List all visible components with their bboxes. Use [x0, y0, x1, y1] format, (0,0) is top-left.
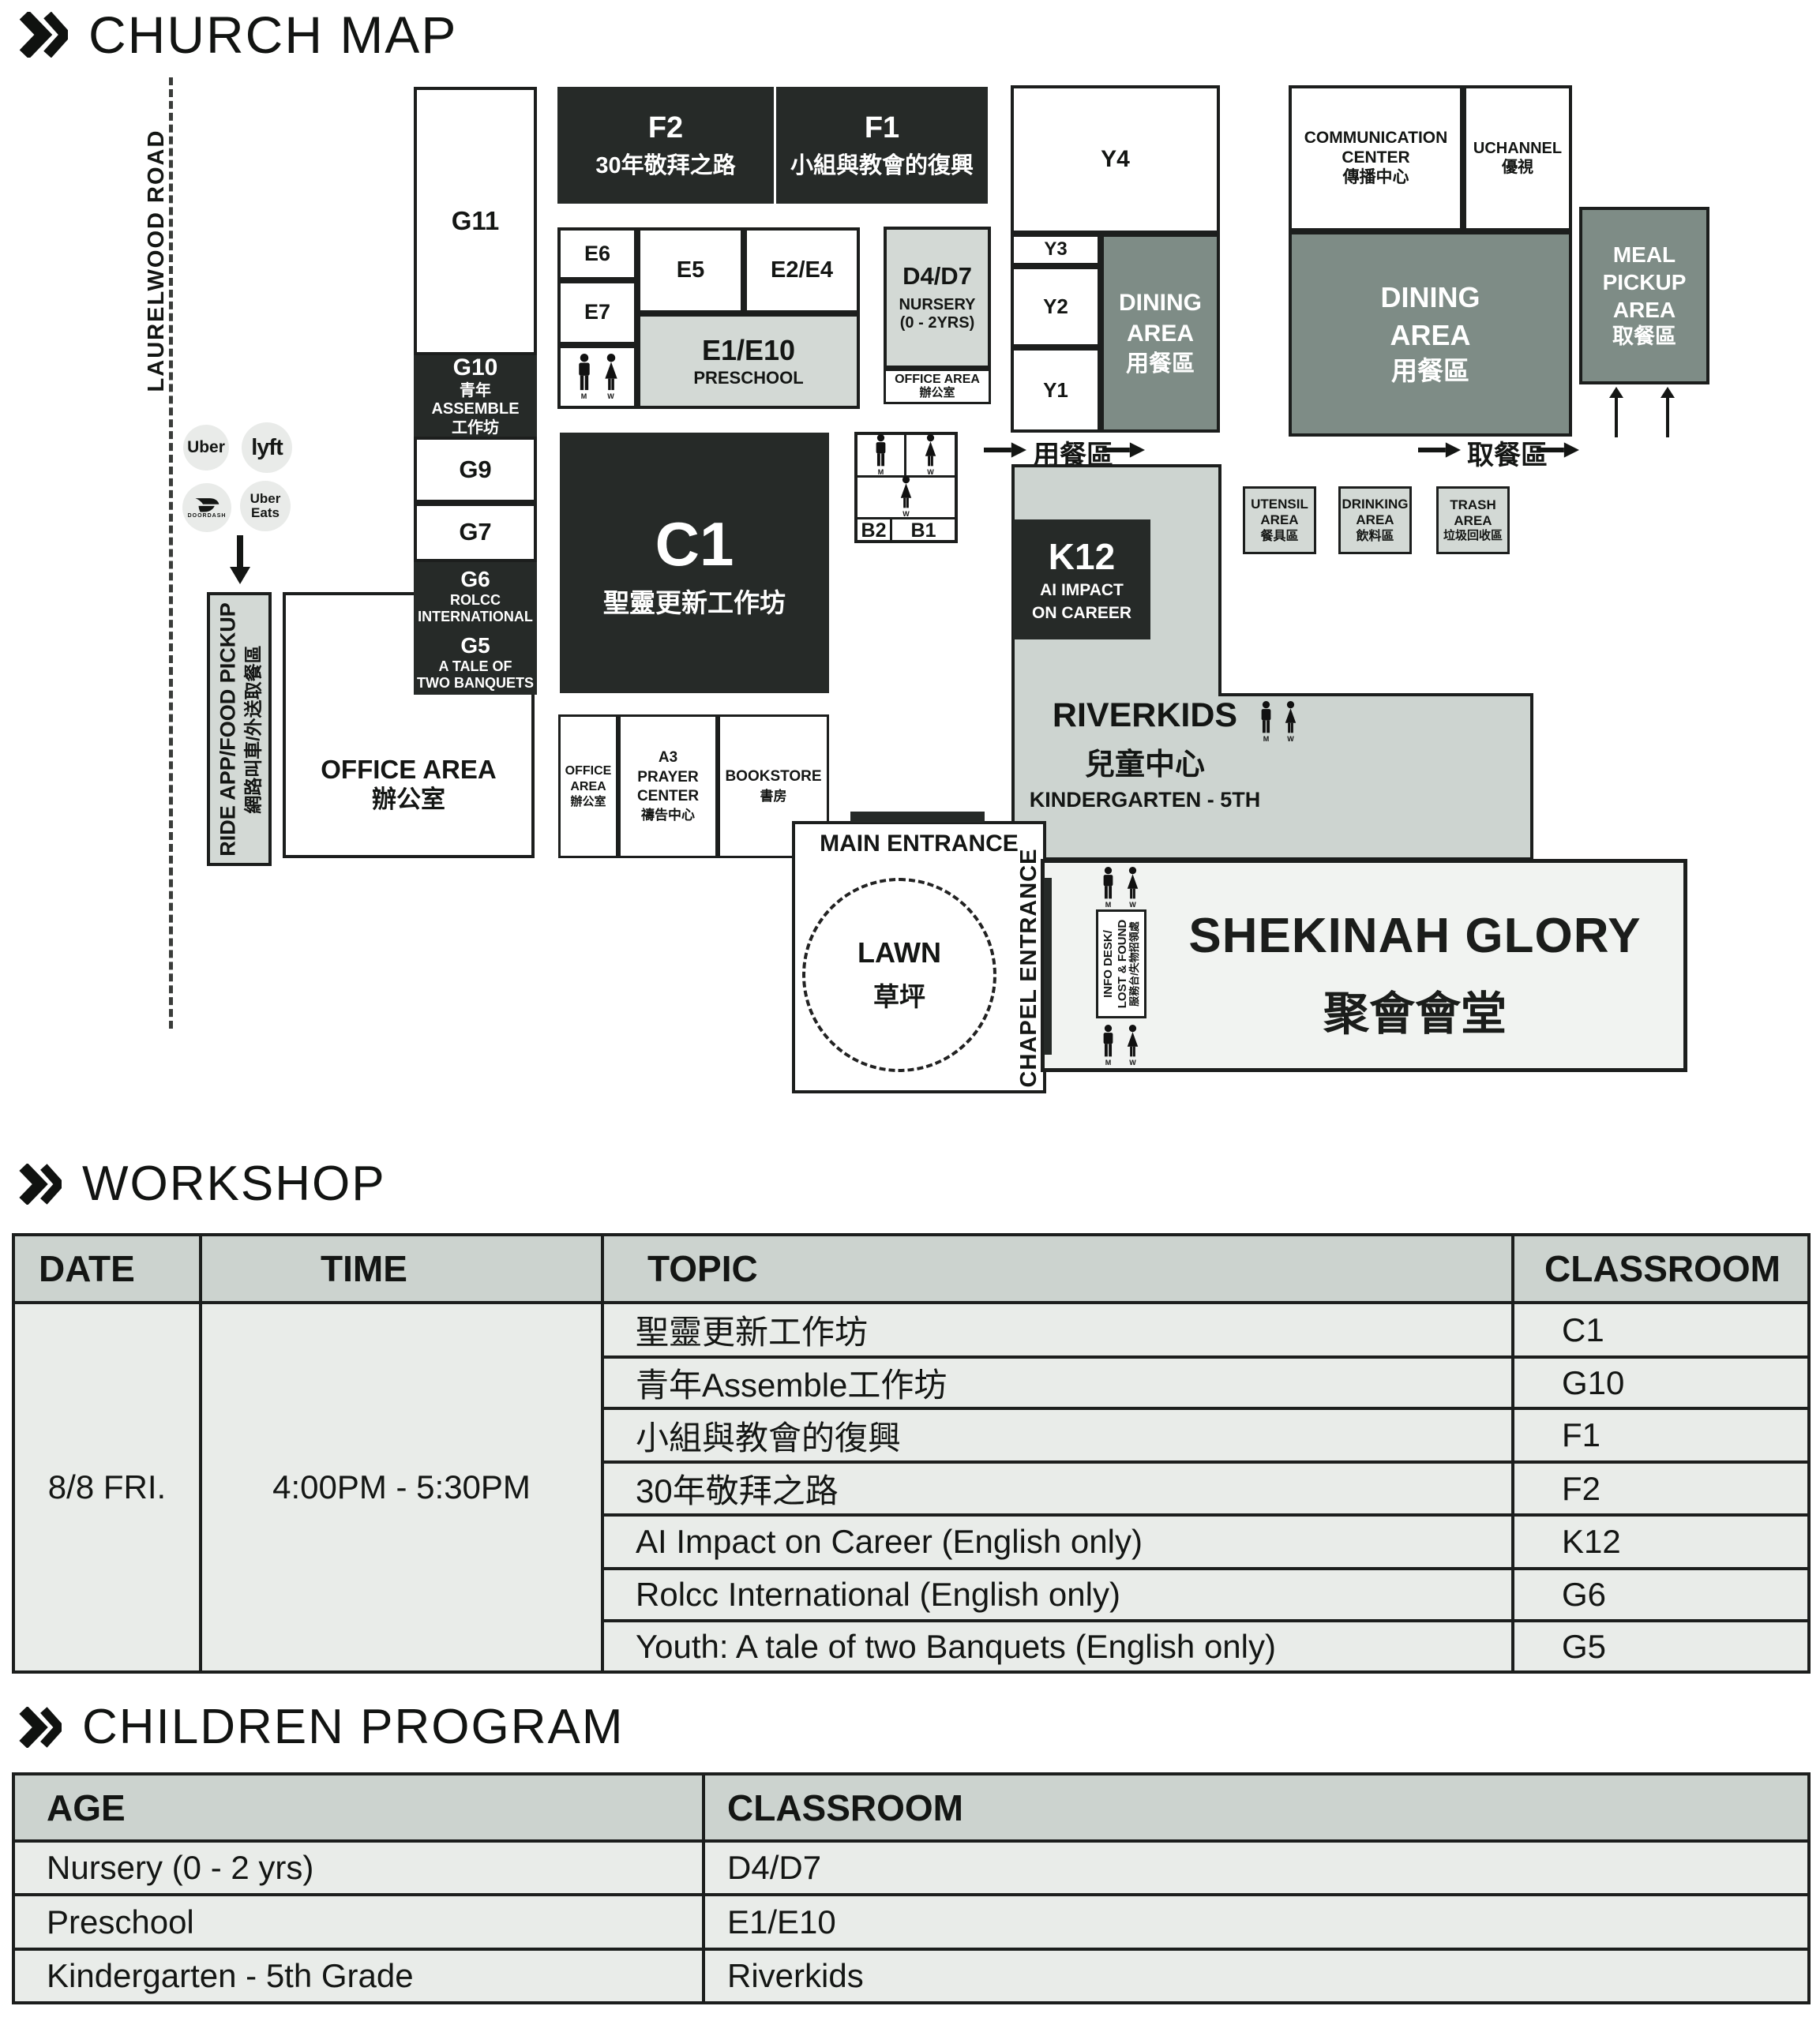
- office-d-label: OFFICE AREA: [895, 373, 980, 387]
- man-icon: M: [576, 354, 592, 401]
- dining2-l2: AREA: [1390, 319, 1470, 352]
- dining2-l1: DINING: [1381, 281, 1480, 314]
- topic-cell: Rolcc International (English only): [604, 1570, 1514, 1619]
- meal-l2: PICKUP: [1603, 269, 1687, 295]
- up-arrow-icon: [1609, 387, 1623, 437]
- office-area-d: OFFICE AREA 辦公室: [884, 369, 991, 404]
- room-g5-l1: A TALE OF: [439, 658, 512, 675]
- office-d-label-zh: 辦公室: [919, 387, 955, 400]
- right-arrow-icon: [1102, 442, 1145, 458]
- room-e5: E5: [637, 227, 744, 313]
- man-glyph-icon: [1259, 701, 1273, 734]
- restroom-b-women-cell: W: [906, 435, 955, 475]
- room-g10-zh1: 青年ASSEMBLE: [417, 382, 534, 419]
- double-chevron-icon: [17, 1164, 62, 1205]
- restroom-shekinah-top: M W: [1096, 867, 1145, 909]
- room-c1-id: C1: [655, 508, 734, 580]
- room-k12-id: K12: [1049, 535, 1115, 578]
- woman-icon: W: [1284, 701, 1297, 743]
- ubereats-label-1: Uber: [250, 492, 281, 506]
- meal-pickup-area: MEAL PICKUP AREA 取餐區: [1579, 207, 1709, 384]
- man-glyph-icon: [874, 434, 887, 467]
- up-arrow-icon: [1661, 387, 1675, 437]
- office-small-zh: 辦公室: [570, 795, 606, 810]
- man-icon: M: [1101, 867, 1115, 909]
- room-g11: G11: [414, 87, 537, 355]
- restroom-m-label: M: [1105, 1059, 1112, 1067]
- topic-cell: Youth: A tale of two Banquets (English o…: [604, 1622, 1514, 1670]
- header-classroom: CLASSROOM: [705, 1775, 1807, 1839]
- restroom-b-top-row: M W: [857, 435, 955, 478]
- room-g9-label: G9: [459, 456, 491, 485]
- room-y3: Y3: [1011, 234, 1101, 266]
- bookstore-l1: BOOKSTORE: [725, 768, 821, 786]
- room-g5-id: G5: [460, 632, 490, 658]
- room-d4-d7-l2: (0 - 2YRS): [900, 314, 974, 333]
- room-k12-l2: ON CAREER: [1032, 604, 1131, 624]
- classroom-cell: F2: [1514, 1470, 1807, 1508]
- doordash-glyph-icon: [194, 497, 220, 513]
- ubereats-label-2: Eats: [251, 506, 280, 520]
- comm-zh: 傳播中心: [1343, 168, 1409, 188]
- woman-glyph-icon: [1284, 701, 1297, 734]
- room-y2-label: Y2: [1043, 294, 1068, 319]
- workshop-row: Youth: A tale of two Banquets (English o…: [604, 1619, 1807, 1670]
- room-c1: C1 聖靈更新工作坊: [560, 433, 829, 693]
- double-chevron-icon: [17, 12, 68, 58]
- man-icon: M: [1259, 701, 1273, 743]
- woman-icon: W: [603, 354, 619, 401]
- woman-icon: W: [1126, 867, 1139, 909]
- restroom-m-label: M: [581, 392, 587, 401]
- right-arrow-icon: [984, 442, 1026, 458]
- room-f1-id: F1: [865, 111, 899, 146]
- dining2-zh: 用餐區: [1391, 356, 1469, 387]
- restroom-shekinah-bottom: M W: [1096, 1025, 1145, 1067]
- room-g7-label: G7: [459, 518, 491, 547]
- room-e1-e10-sub: PRESCHOOL: [693, 368, 803, 388]
- room-e5-label: E5: [677, 257, 704, 283]
- man-glyph-icon: [576, 354, 592, 392]
- uchannel-room: UCHANNEL 優視: [1463, 85, 1572, 231]
- uchannel-zh: 優視: [1502, 159, 1533, 178]
- right-arrow-icon: [1537, 442, 1579, 458]
- dining-area-2: DINING AREA 用餐區: [1289, 231, 1572, 437]
- room-g10-zh2: 工作坊: [452, 419, 499, 438]
- topic-cell: 30年敬拜之路: [604, 1464, 1514, 1513]
- room-e2-e4: E2/E4: [744, 227, 860, 313]
- room-y4-label: Y4: [1101, 145, 1130, 173]
- lyft-icon: lyft: [242, 422, 292, 473]
- room-g10-id: G10: [453, 354, 498, 381]
- workshop-row: 聖靈更新工作坊 C1: [604, 1304, 1807, 1355]
- riverkids-label-block: RIVERKIDS 兒童中心 KINDERGARTEN - 5TH: [1015, 696, 1275, 812]
- topic-cell: 小組與教會的復興: [604, 1410, 1514, 1460]
- info-desk-text: INFO DESK/ LOST & FOUND 服務台/失物招領處: [1098, 912, 1144, 1016]
- room-e7-label: E7: [584, 300, 610, 325]
- children-title: CHILDREN PROGRAM: [82, 1699, 625, 1755]
- church-event-flyer: CHURCH MAP LAURELWOOD ROAD Uber lyft DOO…: [0, 0, 1820, 2021]
- woman-glyph-icon: [1126, 1025, 1139, 1058]
- ride-pickup-en: RIDE APP/FOOD PICKUP: [215, 602, 242, 857]
- room-e6: E6: [557, 227, 637, 280]
- age-cell: Kindergarten - 5th Grade: [15, 1951, 705, 2001]
- meal-zh: 取餐區: [1612, 324, 1676, 350]
- a3-l2: PRAYER: [637, 768, 698, 788]
- uber-icon: Uber: [183, 425, 229, 471]
- main-entrance-label: MAIN ENTRANCE: [797, 831, 1041, 857]
- restroom-m-label: M: [878, 468, 884, 477]
- dining-area-1: DINING AREA 用餐區: [1101, 234, 1220, 433]
- room-e6-label: E6: [584, 242, 610, 267]
- room-e2-e4-label: E2/E4: [771, 257, 833, 283]
- restroom-b-block: M W W B2 B1: [854, 432, 958, 543]
- room-g6-l1: ROLCC: [450, 592, 501, 609]
- children-table: AGE CLASSROOM Nursery (0 - 2 yrs) D4/D7 …: [12, 1772, 1811, 2004]
- room-e7: E7: [557, 280, 637, 345]
- room-f1: F1 小組與教會的復興: [776, 87, 988, 204]
- road-label-wrap: LAURELWOOD ROAD: [118, 120, 194, 401]
- woman-icon: W: [924, 434, 937, 477]
- header-time: TIME: [202, 1236, 604, 1301]
- map-title: CHURCH MAP: [88, 5, 457, 65]
- children-section-header: CHILDREN PROGRAM: [17, 1699, 625, 1755]
- communication-center: COMMUNICATION CENTER 傳播中心: [1289, 85, 1463, 231]
- classroom-cell: G5: [1514, 1628, 1807, 1666]
- right-arrow-icon: [1418, 442, 1461, 458]
- shekinah-zh: 聚會會堂: [1323, 977, 1507, 1043]
- classroom-cell: K12: [1514, 1523, 1807, 1561]
- classroom-cell: G6: [1514, 1576, 1807, 1614]
- room-e1-e10: E1/E10 PRESCHOOL: [637, 313, 860, 409]
- riverkids-l1: RIVERKIDS: [1053, 696, 1237, 735]
- room-f2-id: F2: [648, 111, 683, 146]
- classroom-cell: D4/D7: [705, 1843, 1807, 1893]
- woman-glyph-icon: [924, 434, 937, 467]
- classroom-cell: Riverkids: [705, 1951, 1807, 2001]
- a3-zh: 禱告中心: [641, 807, 695, 824]
- room-d4-d7: D4/D7 NURSERY (0 - 2YRS): [884, 227, 991, 369]
- room-y4: Y4: [1011, 85, 1220, 234]
- road-label: LAURELWOOD ROAD: [118, 120, 194, 401]
- workshop-row: 30年敬拜之路 F2: [604, 1460, 1807, 1513]
- a3-prayer-center: A3 PRAYER CENTER 禱告中心: [618, 714, 718, 858]
- room-f1-zh: 小組與教會的復興: [790, 152, 974, 179]
- classroom-cell: E1/E10: [705, 1896, 1807, 1948]
- header-classroom: CLASSROOM: [1514, 1236, 1807, 1301]
- room-y2: Y2: [1011, 266, 1101, 347]
- a3-l1: A3: [659, 748, 677, 768]
- room-g11-label: G11: [452, 206, 500, 237]
- doordash-icon: DOORDASH: [182, 483, 231, 532]
- uchannel-l1: UCHANNEL: [1473, 140, 1562, 159]
- topic-cell: 聖靈更新工作坊: [604, 1304, 1514, 1355]
- uber-label: Uber: [187, 438, 225, 457]
- office-large-label-zh: 辦公室: [372, 786, 445, 815]
- meal-l1: MEAL: [1613, 242, 1676, 268]
- room-g6-id: G6: [460, 566, 490, 592]
- topic-cell: AI Impact on Career (English only): [604, 1517, 1514, 1567]
- man-icon: M: [874, 434, 887, 477]
- dining1-zh: 用餐區: [1126, 351, 1195, 377]
- children-table-header: AGE CLASSROOM: [15, 1775, 1807, 1843]
- woman-glyph-icon: [899, 476, 913, 509]
- chapel-entrance-wrap: CHAPEL ENTRANCE: [1014, 883, 1044, 1053]
- children-row: Nursery (0 - 2 yrs) D4/D7: [15, 1843, 1807, 1893]
- room-b1: B1: [892, 519, 955, 543]
- restroom-riverkids: M W: [1254, 701, 1303, 743]
- dining1-l2: AREA: [1127, 320, 1194, 347]
- age-cell: Preschool: [15, 1896, 705, 1948]
- chapel-door-bar: [1044, 878, 1052, 1055]
- doordash-label: DOORDASH: [188, 513, 227, 519]
- room-d4-d7-id: D4/D7: [902, 262, 972, 291]
- workshop-date-cell: 8/8 FRI.: [15, 1304, 202, 1670]
- lawn-label-zh: 草坪: [873, 976, 925, 1014]
- woman-icon: W: [899, 476, 913, 519]
- info-desk-zh: 服務台/失物招領處: [1129, 921, 1141, 1007]
- bookstore-zh: 書房: [760, 789, 787, 804]
- room-g10: G10 青年ASSEMBLE 工作坊: [414, 355, 537, 437]
- info-desk-l1: INFO DESK/: [1101, 930, 1115, 998]
- room-g5-l2: TWO BANQUETS: [417, 675, 534, 692]
- header-date: DATE: [15, 1236, 202, 1301]
- down-arrow-icon: [230, 535, 250, 584]
- restroom-w-label: W: [607, 392, 614, 401]
- restroom-w-label: W: [1129, 1059, 1136, 1067]
- comm-l2: CENTER: [1342, 148, 1409, 168]
- workshop-section-header: WORKSHOP: [17, 1156, 386, 1212]
- room-c1-zh: 聖靈更新工作坊: [603, 588, 786, 619]
- restroom-b-men-cell: M: [857, 435, 906, 475]
- room-y1: Y1: [1011, 347, 1101, 433]
- lyft-label: lyft: [251, 435, 283, 461]
- room-k12: K12 AI IMPACT ON CAREER: [1013, 519, 1150, 639]
- children-row: Kindergarten - 5th Grade Riverkids: [15, 1948, 1807, 2001]
- room-y1-label: Y1: [1043, 378, 1068, 403]
- lawn-circle: LAWN 草坪: [802, 878, 996, 1072]
- classroom-cell: C1: [1514, 1311, 1807, 1349]
- children-row: Preschool E1/E10: [15, 1893, 1807, 1948]
- info-desk-l2: LOST & FOUND: [1116, 920, 1129, 1009]
- riverkids-l2: KINDERGARTEN - 5TH: [1030, 788, 1261, 812]
- office-large-label: OFFICE AREA: [321, 755, 496, 786]
- shekinah-l1: SHEKINAH GLORY: [1188, 908, 1641, 964]
- restroom-w-label: W: [927, 468, 934, 477]
- woman-icon: W: [1126, 1025, 1139, 1067]
- shekinah-label-block: SHEKINAH GLORY 聚會會堂: [1154, 908, 1676, 1043]
- ride-pickup-text: RIDE APP/FOOD PICKUP 網路叫車/外送取餐區: [211, 596, 269, 864]
- room-d4-d7-l1: NURSERY: [899, 296, 975, 315]
- dining1-l1: DINING: [1119, 289, 1202, 317]
- room-f2: F2 30年敬拜之路: [557, 87, 774, 204]
- restroom-w-label: W: [902, 510, 910, 519]
- header-topic: TOPIC: [604, 1236, 1514, 1301]
- header-age: AGE: [15, 1775, 705, 1839]
- room-g5: G5 A TALE OF TWO BANQUETS: [414, 629, 537, 695]
- workshop-title: WORKSHOP: [82, 1156, 386, 1212]
- room-k12-l1: AI IMPACT: [1040, 581, 1124, 601]
- woman-glyph-icon: [1126, 867, 1139, 900]
- workshop-row: 小組與教會的復興 F1: [604, 1407, 1807, 1460]
- restroom-w-label: W: [1129, 901, 1136, 909]
- chapel-entrance-label: CHAPEL ENTRANCE: [1014, 883, 1044, 1053]
- riverkids-zh: 兒童中心: [1085, 740, 1205, 783]
- workshop-row: 青年Assemble工作坊 G10: [604, 1355, 1807, 1407]
- restroom-w-label: W: [1287, 735, 1294, 743]
- office-area-small: OFFICE AREA 辦公室: [558, 714, 618, 858]
- room-e1-e10-id: E1/E10: [702, 334, 795, 367]
- classroom-cell: G10: [1514, 1364, 1807, 1402]
- room-f2-zh: 30年敬拜之路: [595, 152, 735, 179]
- ubereats-icon: Uber Eats: [240, 481, 291, 531]
- age-cell: Nursery (0 - 2 yrs): [15, 1843, 705, 1893]
- workshop-table-header: DATE TIME TOPIC CLASSROOM: [15, 1236, 1807, 1304]
- meal-l3: AREA: [1613, 297, 1676, 323]
- room-g6-l2: INTERNATIONAL: [418, 609, 533, 625]
- restroom-e-block: M W: [557, 345, 637, 409]
- room-g9: G9: [414, 437, 537, 503]
- workshop-table: DATE TIME TOPIC CLASSROOM 8/8 FRI. 4:00P…: [12, 1233, 1811, 1674]
- info-desk-box: INFO DESK/ LOST & FOUND 服務台/失物招領處: [1096, 909, 1146, 1018]
- double-chevron-icon: [17, 1707, 62, 1748]
- room-y3-label: Y3: [1044, 238, 1067, 261]
- restroom-m-label: M: [1105, 901, 1112, 909]
- restroom-m-label: M: [1263, 735, 1270, 743]
- man-glyph-icon: [1101, 1025, 1115, 1058]
- office-small-l1: OFFICE: [565, 763, 612, 779]
- woman-glyph-icon: [603, 354, 619, 392]
- man-glyph-icon: [1101, 867, 1115, 900]
- topic-cell: 青年Assemble工作坊: [604, 1359, 1514, 1407]
- workshop-row: AI Impact on Career (English only) K12: [604, 1513, 1807, 1567]
- room-b-row: B2 B1: [857, 519, 955, 543]
- workshop-row: Rolcc International (English only) G6: [604, 1567, 1807, 1619]
- ride-pickup-zh: 網路叫車/外送取餐區: [242, 645, 265, 813]
- room-g7: G7: [414, 503, 537, 562]
- map-section-header: CHURCH MAP: [17, 5, 457, 65]
- main-entrance-door-bar: [850, 812, 985, 823]
- a3-l3: CENTER: [637, 787, 699, 807]
- room-g6: G6 ROLCC INTERNATIONAL: [414, 562, 537, 629]
- classroom-cell: F1: [1514, 1416, 1807, 1454]
- workshop-time-cell: 4:00PM - 5:30PM: [202, 1304, 604, 1670]
- comm-l1: COMMUNICATION: [1304, 129, 1448, 148]
- office-small-l2: AREA: [570, 779, 606, 795]
- man-icon: M: [1101, 1025, 1115, 1067]
- lawn-label: LAWN: [857, 936, 941, 969]
- ride-pickup-area: RIDE APP/FOOD PICKUP 網路叫車/外送取餐區: [207, 592, 272, 866]
- restroom-b-mid-row: W: [857, 478, 955, 519]
- room-b2: B2: [857, 519, 892, 543]
